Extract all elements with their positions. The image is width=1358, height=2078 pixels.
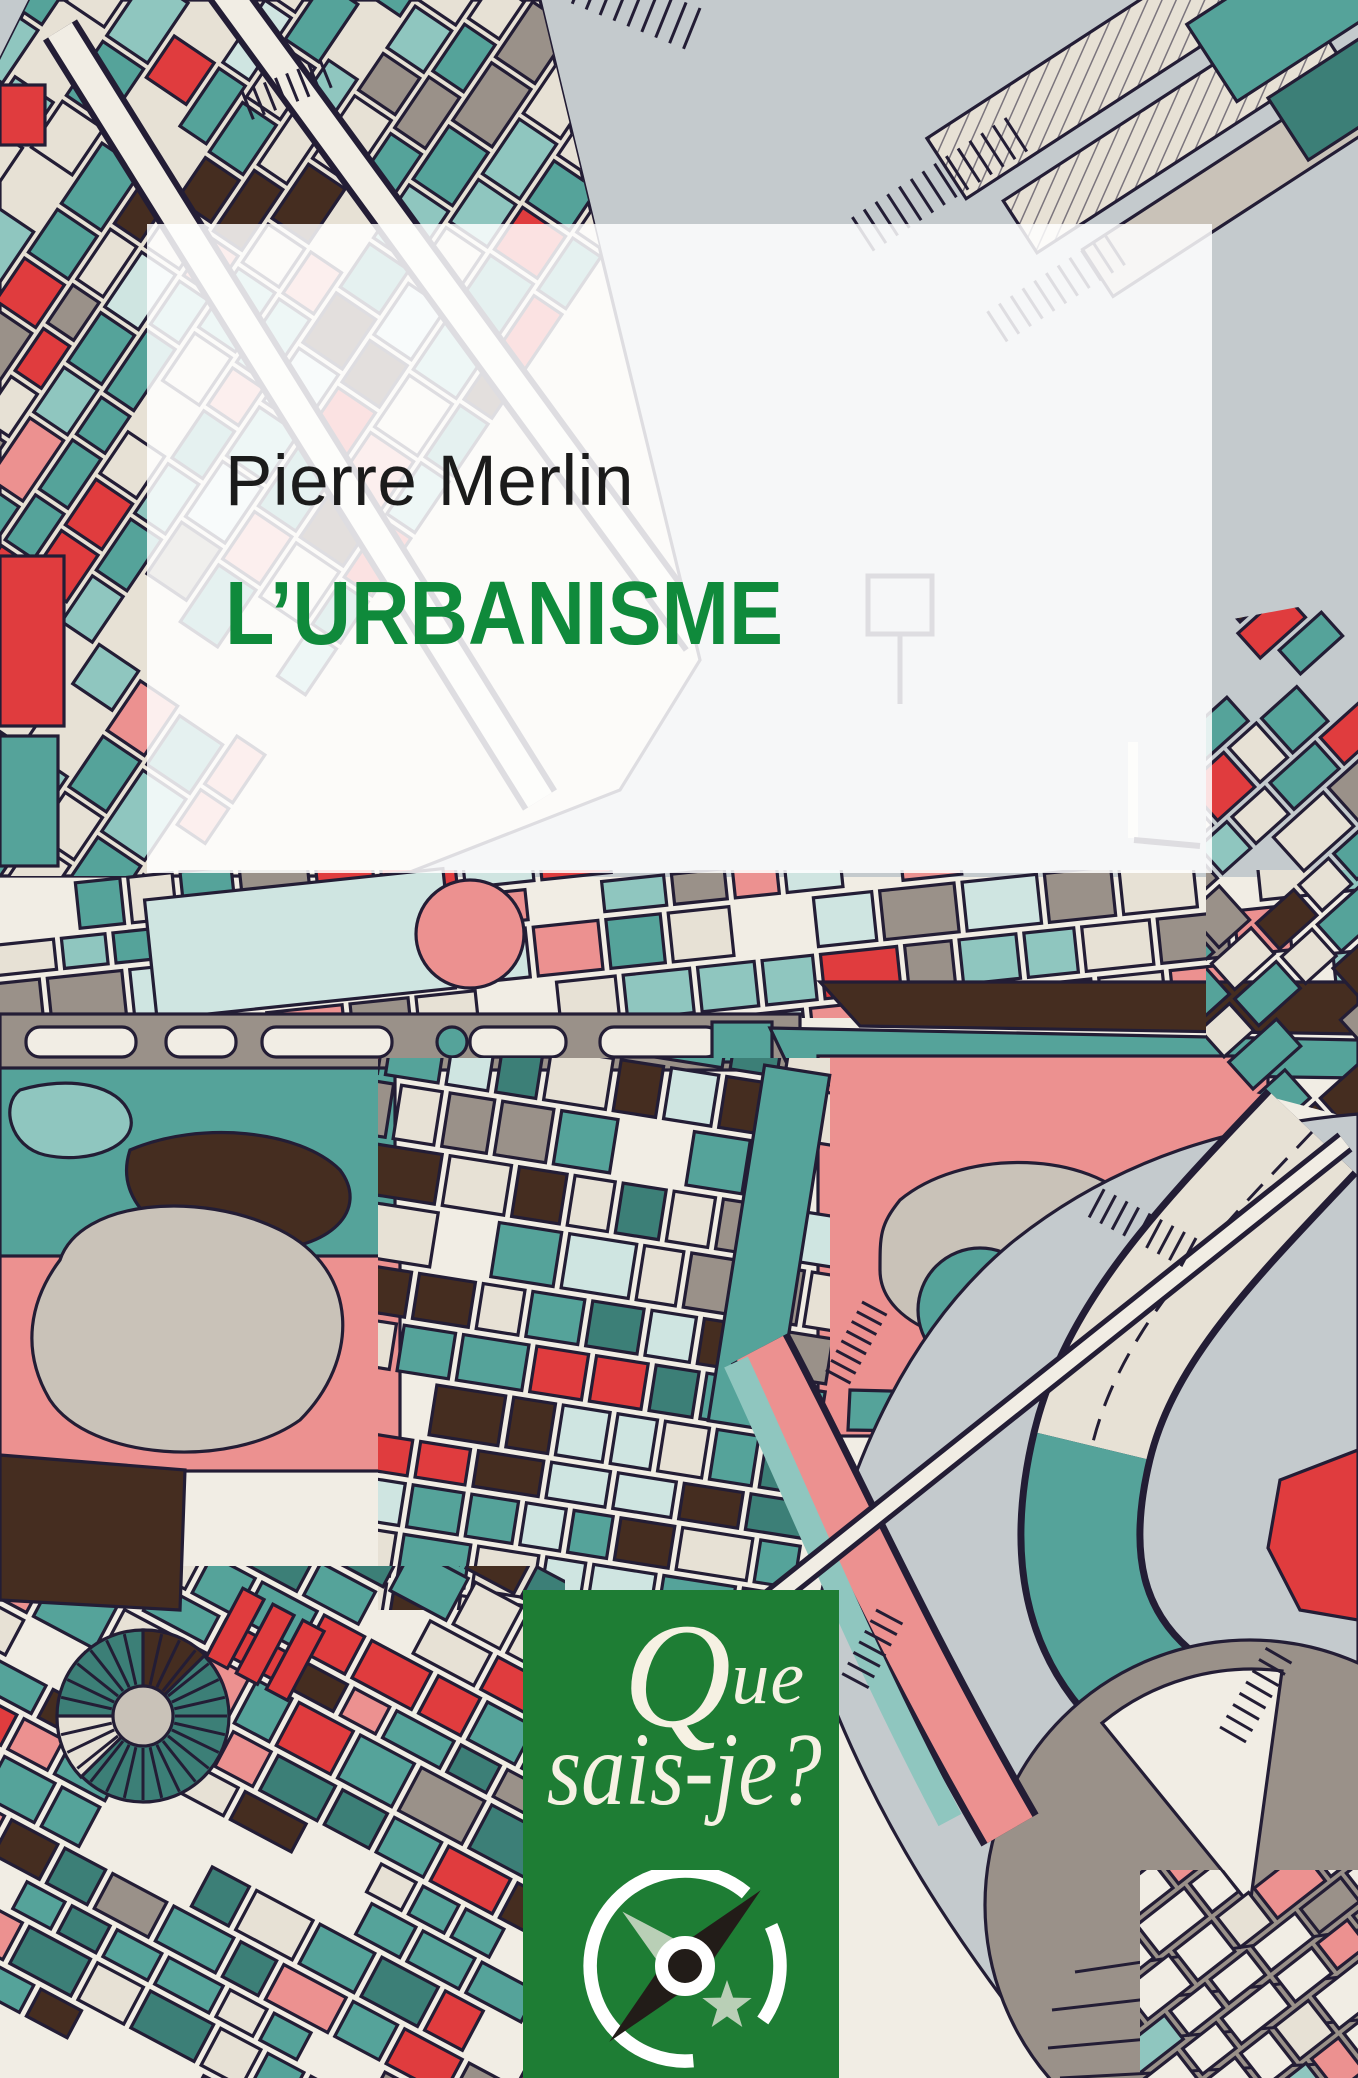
map-park bbox=[0, 1068, 400, 1471]
logo-line-sais-je: sais-je? bbox=[547, 1718, 816, 1822]
map-roundabout bbox=[416, 880, 524, 988]
book-cover: Pierre Merlin L’URBANISME Que sais-je? bbox=[0, 0, 1358, 2078]
star-icon bbox=[702, 1980, 751, 2027]
book-title: L’URBANISME bbox=[225, 569, 783, 659]
title-box: Pierre Merlin L’URBANISME bbox=[147, 224, 1212, 873]
map-starburst bbox=[57, 1630, 229, 1802]
compass-arc-right bbox=[763, 1926, 780, 2021]
publisher-logo-box: Que sais-je? bbox=[523, 1590, 839, 2078]
author-name: Pierre Merlin bbox=[225, 446, 634, 517]
logo-ue: ue bbox=[731, 1636, 805, 1720]
compass-icon bbox=[523, 1870, 839, 2078]
